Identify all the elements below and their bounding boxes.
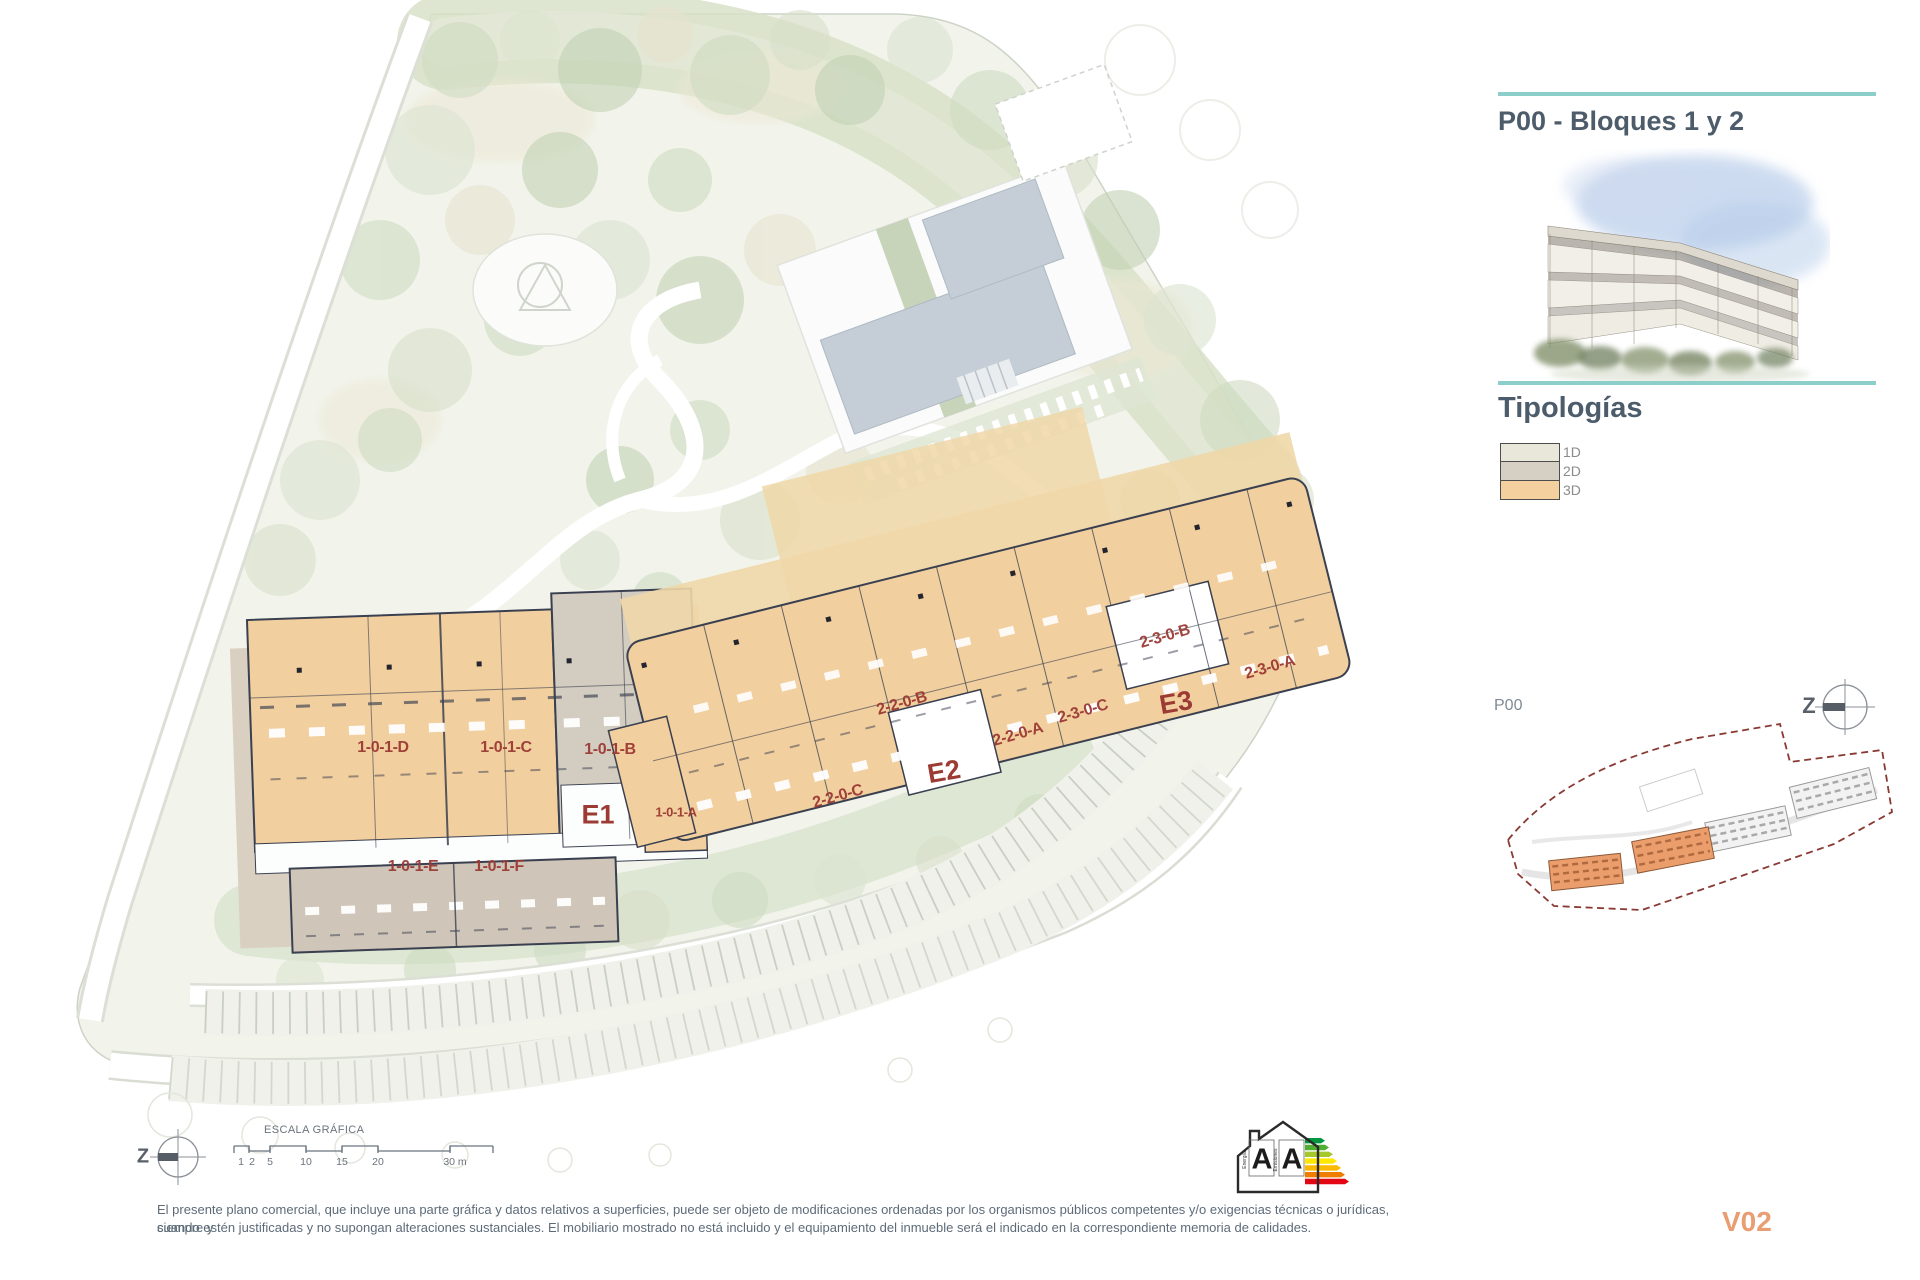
scale-tick-10: 10 xyxy=(300,1156,312,1168)
minimap-building-gray-2 xyxy=(1789,768,1876,819)
unit-label-1-0-1-b: 1-0-1-B xyxy=(584,741,635,759)
energy-letter-left: A xyxy=(1252,1144,1273,1177)
legend-swatch-3d xyxy=(1500,481,1560,500)
legend-swatch-2d xyxy=(1500,462,1560,481)
scale-tick-5: 5 xyxy=(267,1156,273,1168)
unit-label-1-0-1-f: 1-0-1-F xyxy=(474,858,524,876)
divider-middle xyxy=(1498,381,1876,385)
scale-tick-2: 2 xyxy=(249,1156,255,1168)
legend-row-1d: 1D xyxy=(1500,443,1581,462)
legend-label-2d: 2D xyxy=(1560,462,1581,481)
legend-row-2d: 2D xyxy=(1500,462,1581,481)
north-letter-main: Z xyxy=(137,1146,149,1169)
unit-label-1-0-1-d: 1-0-1-D xyxy=(357,739,408,757)
scale-tick-30m: 30 m xyxy=(443,1156,466,1168)
version-label: V02 xyxy=(1722,1206,1772,1238)
unit-label-1-0-1-e: 1-0-1-E xyxy=(388,858,439,876)
disclaimer-line-2: cuando estén justificadas y no supongan … xyxy=(157,1219,1432,1237)
scale-tick-20: 20 xyxy=(372,1156,384,1168)
plan-sheet: 1-0-1-D 1-0-1-C 1-0-1-B 1-0-1-A 1-0-1-E … xyxy=(0,0,1920,1280)
unit-label-1-0-1-a: 1-0-1-A xyxy=(655,805,696,820)
north-letter-minimap: Z xyxy=(1802,693,1815,719)
north-compass-main xyxy=(150,1129,206,1185)
playground xyxy=(473,234,617,346)
energy-axis-emisiones: Emisiones xyxy=(1273,1148,1279,1171)
energy-axis-energia: Energía xyxy=(1242,1151,1248,1169)
tipologias-heading: Tipologías xyxy=(1498,392,1642,425)
scale-bar-title: ESCALA GRÁFICA xyxy=(264,1124,364,1136)
location-minimap xyxy=(1492,722,1912,937)
typology-legend: 1D 2D 3D xyxy=(1500,443,1581,500)
energy-letter-right: A xyxy=(1282,1144,1303,1177)
unit-label-1-0-1-c: 1-0-1-C xyxy=(480,739,531,757)
legend-row-3d: 3D xyxy=(1500,481,1581,500)
building-render-image xyxy=(1530,148,1830,383)
core-label-e2: E2 xyxy=(925,754,963,790)
minimap-floor-label: P00 xyxy=(1494,697,1522,715)
legend-label-1d: 1D xyxy=(1560,443,1581,462)
minimap-building-gray-1 xyxy=(1705,806,1791,852)
divider-top xyxy=(1498,92,1876,96)
core-label-e1: E1 xyxy=(581,800,614,831)
scale-tick-15: 15 xyxy=(336,1156,348,1168)
scale-tick-1: 1 xyxy=(238,1156,244,1168)
core-label-e3: E3 xyxy=(1157,685,1195,721)
page-title: P00 - Bloques 1 y 2 xyxy=(1498,106,1744,137)
minimap-building-orange-1 xyxy=(1549,853,1624,890)
legend-swatch-1d xyxy=(1500,443,1560,462)
legend-label-3d: 3D xyxy=(1560,481,1581,500)
